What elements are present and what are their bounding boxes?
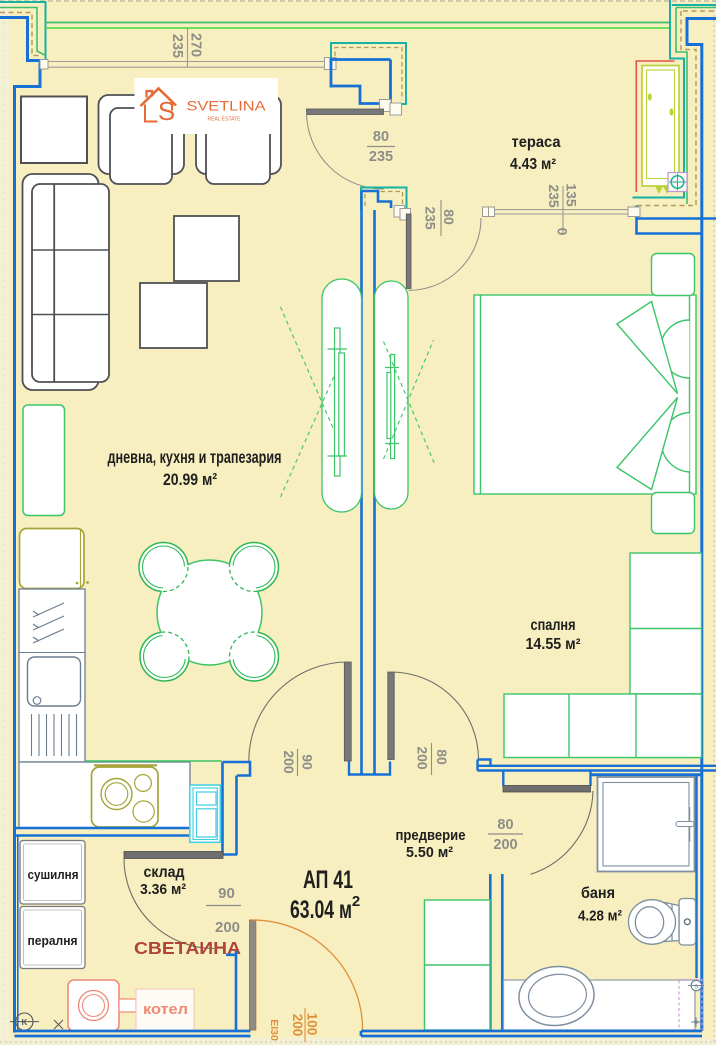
svg-text:200: 200: [493, 837, 517, 853]
svg-text:63.04 м: 63.04 м: [290, 896, 352, 924]
svg-text:баня: баня: [581, 885, 615, 902]
svg-text:5.50 м²: 5.50 м²: [406, 844, 453, 861]
svg-text:0: 0: [555, 228, 571, 236]
svg-text:котел: котел: [143, 1002, 188, 1018]
svg-text:90: 90: [218, 885, 235, 902]
svg-text:REAL ESTATE: REAL ESTATE: [208, 117, 241, 123]
svg-text:14.55 м²: 14.55 м²: [526, 636, 581, 653]
svg-text:S: S: [158, 96, 175, 126]
svg-text:тераса: тераса: [512, 134, 561, 151]
svg-text:235: 235: [423, 206, 439, 230]
svg-text:200: 200: [415, 746, 431, 770]
svg-text:200: 200: [215, 919, 240, 936]
svg-text:100: 100: [305, 1013, 320, 1036]
svg-text:склад: склад: [144, 864, 185, 881]
svg-text:3.36 м²: 3.36 м²: [140, 881, 186, 898]
svg-text:EI30: EI30: [268, 1019, 280, 1041]
svg-text:200: 200: [290, 1014, 305, 1037]
svg-text:2: 2: [352, 893, 360, 910]
svg-text:235: 235: [369, 149, 393, 165]
svg-text:SVETLINA: SVETLINA: [187, 99, 266, 114]
svg-text:сушилня: сушилня: [28, 867, 79, 882]
svg-text:s: s: [695, 984, 699, 991]
svg-text:спалня: спалня: [531, 617, 576, 634]
svg-text:235: 235: [546, 184, 562, 208]
svg-text:135: 135: [564, 183, 580, 207]
svg-text:270: 270: [188, 33, 204, 57]
svg-text:пералня: пералня: [28, 933, 78, 948]
svg-text:90: 90: [300, 754, 316, 770]
svg-text:4.28 м²: 4.28 м²: [578, 908, 622, 925]
svg-text:80: 80: [497, 817, 513, 833]
svg-text:20.99 м²: 20.99 м²: [163, 471, 217, 489]
svg-text:80: 80: [373, 129, 389, 145]
svg-text:4.43 м²: 4.43 м²: [510, 156, 556, 173]
svg-text:200: 200: [281, 750, 297, 774]
svg-text:K: K: [22, 1018, 28, 1027]
svg-text:АП 41: АП 41: [303, 866, 353, 894]
svg-text:дневна, кухня и трапезария: дневна, кухня и трапезария: [108, 447, 282, 467]
svg-text:80: 80: [434, 749, 450, 765]
svg-text:СВЕТАИНА: СВЕТАИНА: [134, 938, 241, 958]
svg-text:80: 80: [441, 209, 457, 225]
svg-text:235: 235: [169, 34, 185, 58]
svg-text:предверие: предверие: [396, 827, 466, 844]
